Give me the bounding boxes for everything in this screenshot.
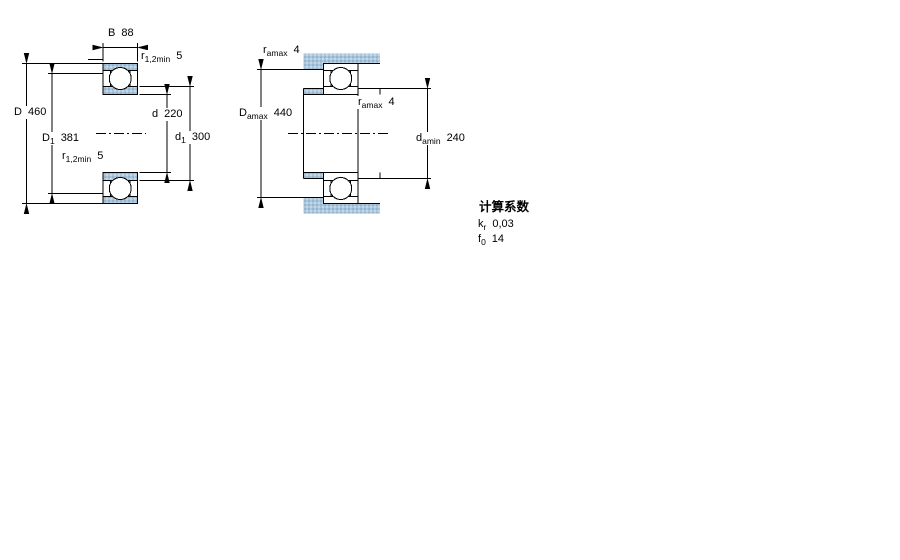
dim-label-fillet-r12min-top: r1,2min5 — [140, 50, 183, 63]
ball-top — [109, 68, 131, 90]
dim-label-damin: damin240 — [415, 132, 466, 145]
dim-label-ramax-mid: ramax4 — [357, 96, 396, 109]
dim-label-ramax-top: ramax4 — [262, 44, 301, 57]
drawing-canvas — [0, 0, 900, 560]
mounted-ball-top — [330, 68, 352, 90]
factor-f0: f014 — [478, 233, 504, 249]
dimension-d — [140, 95, 172, 173]
factor-kr: kr0,03 — [478, 218, 514, 234]
dim-label-bore-d: d220 — [151, 108, 183, 121]
bearing-technical-drawing: B88 r1,2min5 D460 D1381 r1,2min5 d220 d1… — [0, 0, 900, 560]
dim-label-fillet-r12min-bottom: r1,2min5 — [61, 150, 104, 163]
dim-label-outer-diameter-D: D460 — [13, 106, 47, 119]
dimension-B — [103, 43, 138, 62]
dim-label-width-B: B88 — [107, 27, 135, 40]
dim-label-shoulder-d1: d1300 — [174, 131, 211, 144]
calculation-factors-title: 计算系数 — [479, 196, 529, 215]
ball-bottom — [109, 178, 131, 200]
cross-section-diagram — [22, 43, 194, 204]
dim-label-shoulder-D1: D1381 — [41, 132, 80, 145]
mounted-ball-bottom — [330, 178, 352, 200]
mounting-diagram — [257, 54, 431, 214]
dim-label-Damax: Damax440 — [238, 107, 293, 120]
